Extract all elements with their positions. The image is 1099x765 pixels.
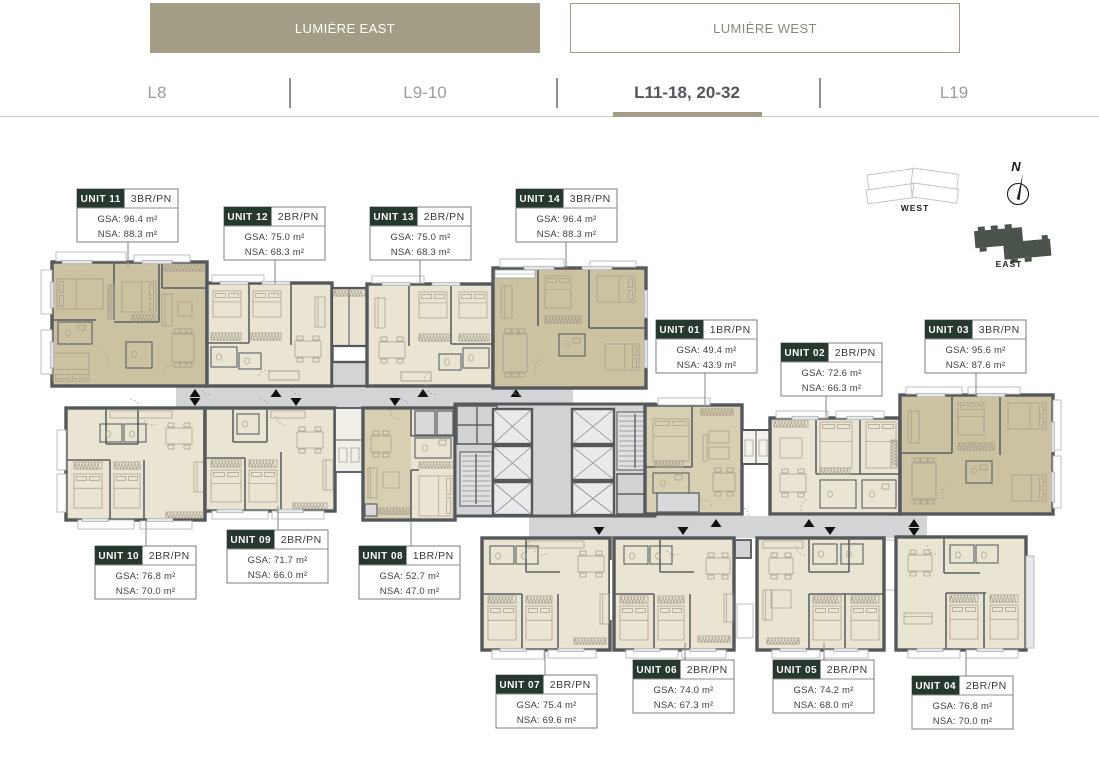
svg-text:2BR/PN: 2BR/PN xyxy=(278,211,319,223)
svg-text:2BR/PN: 2BR/PN xyxy=(550,679,591,691)
svg-text:GSA: 72.6 m²: GSA: 72.6 m² xyxy=(802,368,862,379)
svg-text:2BR/PN: 2BR/PN xyxy=(281,534,322,546)
svg-text:UNIT 06: UNIT 06 xyxy=(636,665,677,676)
svg-text:NSA: 67.3 m²: NSA: 67.3 m² xyxy=(654,700,713,711)
svg-text:NSA: 87.6 m²: NSA: 87.6 m² xyxy=(946,360,1005,371)
svg-text:2BR/PN: 2BR/PN xyxy=(424,211,465,223)
svg-text:EAST: EAST xyxy=(996,259,1023,269)
svg-text:UNIT 08: UNIT 08 xyxy=(362,551,403,562)
svg-text:UNIT 13: UNIT 13 xyxy=(373,212,414,223)
svg-text:NSA: 88.3 m²: NSA: 88.3 m² xyxy=(537,229,596,240)
svg-text:GSA: 76.8 m²: GSA: 76.8 m² xyxy=(116,571,176,582)
svg-text:NSA: 43.9 m²: NSA: 43.9 m² xyxy=(677,360,736,371)
svg-text:GSA: 71.7 m²: GSA: 71.7 m² xyxy=(248,555,308,566)
svg-text:GSA: 75.0 m²: GSA: 75.0 m² xyxy=(391,232,451,243)
svg-text:UNIT 14: UNIT 14 xyxy=(519,194,560,205)
svg-text:GSA: 96.4 m²: GSA: 96.4 m² xyxy=(537,214,597,225)
svg-text:NSA: 66.0 m²: NSA: 66.0 m² xyxy=(248,570,307,581)
svg-text:UNIT 09: UNIT 09 xyxy=(230,535,271,546)
svg-text:UNIT 02: UNIT 02 xyxy=(784,348,825,359)
svg-text:UNIT 03: UNIT 03 xyxy=(928,325,969,336)
svg-text:NSA: 88.3 m²: NSA: 88.3 m² xyxy=(98,229,157,240)
svg-text:NSA: 66.3 m²: NSA: 66.3 m² xyxy=(802,383,861,394)
svg-text:UNIT 11: UNIT 11 xyxy=(81,194,121,205)
svg-text:GSA: 75.4 m²: GSA: 75.4 m² xyxy=(517,700,577,711)
svg-text:UNIT 01: UNIT 01 xyxy=(659,325,700,336)
svg-text:3BR/PN: 3BR/PN xyxy=(570,193,611,205)
svg-text:2BR/PN: 2BR/PN xyxy=(687,664,728,676)
svg-text:1BR/PN: 1BR/PN xyxy=(710,324,751,336)
svg-text:GSA: 95.6 m²: GSA: 95.6 m² xyxy=(946,345,1006,356)
svg-text:2BR/PN: 2BR/PN xyxy=(827,664,868,676)
svg-text:2BR/PN: 2BR/PN xyxy=(966,680,1007,692)
svg-text:WEST: WEST xyxy=(901,203,930,213)
svg-text:GSA: 75.0 m²: GSA: 75.0 m² xyxy=(245,232,305,243)
svg-text:NSA: 68.3 m²: NSA: 68.3 m² xyxy=(391,247,450,258)
svg-text:UNIT 04: UNIT 04 xyxy=(915,681,956,692)
svg-text:NSA: 70.0 m²: NSA: 70.0 m² xyxy=(116,586,175,597)
svg-text:NSA: 70.0 m²: NSA: 70.0 m² xyxy=(933,716,992,727)
svg-text:2BR/PN: 2BR/PN xyxy=(835,347,876,359)
svg-text:GSA: 49.4 m²: GSA: 49.4 m² xyxy=(677,345,737,356)
svg-text:UNIT 05: UNIT 05 xyxy=(776,665,817,676)
svg-text:1BR/PN: 1BR/PN xyxy=(413,550,454,562)
svg-text:3BR/PN: 3BR/PN xyxy=(979,324,1020,336)
svg-text:NSA: 68.3 m²: NSA: 68.3 m² xyxy=(245,247,304,258)
svg-text:UNIT 07: UNIT 07 xyxy=(499,680,540,691)
svg-text:GSA: 74.2 m²: GSA: 74.2 m² xyxy=(794,685,854,696)
svg-text:GSA: 74.0 m²: GSA: 74.0 m² xyxy=(654,685,714,696)
svg-text:UNIT 10: UNIT 10 xyxy=(98,551,139,562)
svg-text:NSA: 47.0 m²: NSA: 47.0 m² xyxy=(380,586,439,597)
svg-text:GSA: 76.8 m²: GSA: 76.8 m² xyxy=(933,701,993,712)
svg-text:GSA: 52.7 m²: GSA: 52.7 m² xyxy=(380,571,440,582)
svg-text:2BR/PN: 2BR/PN xyxy=(149,550,190,562)
svg-text:NSA: 69.6 m²: NSA: 69.6 m² xyxy=(517,715,576,726)
svg-text:NSA: 68.0 m²: NSA: 68.0 m² xyxy=(794,700,853,711)
svg-text:N: N xyxy=(1011,159,1021,174)
svg-text:3BR/PN: 3BR/PN xyxy=(131,193,172,205)
svg-text:UNIT 12: UNIT 12 xyxy=(227,212,268,223)
svg-text:GSA: 96.4 m²: GSA: 96.4 m² xyxy=(98,214,158,225)
